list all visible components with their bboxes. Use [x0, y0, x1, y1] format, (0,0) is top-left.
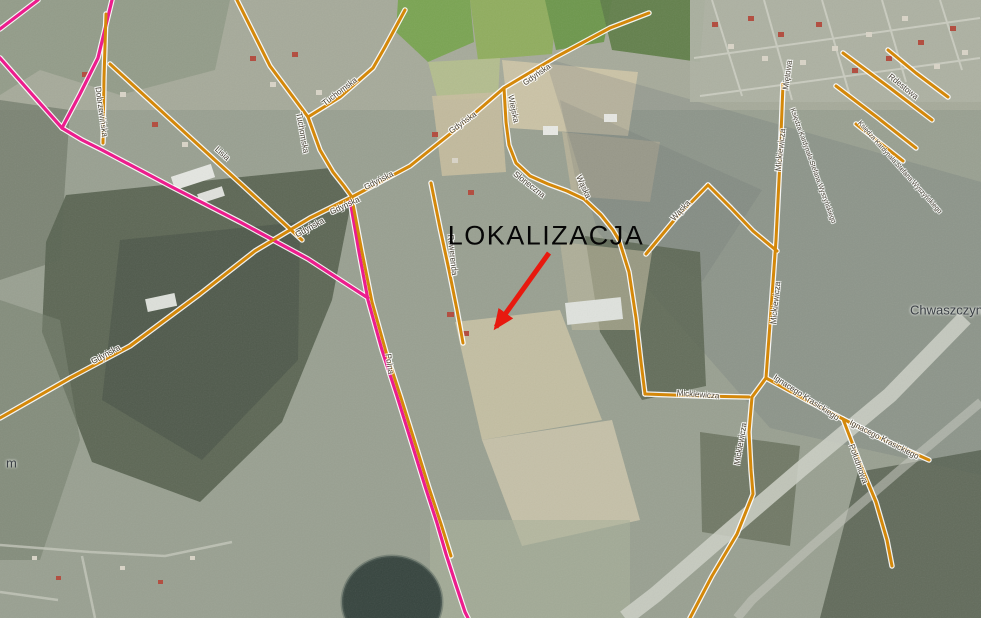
lokalizacja-annotation: LOKALIZACJA: [448, 223, 645, 250]
location-arrow-layer: [0, 0, 981, 618]
location-arrow: [496, 253, 549, 327]
map-container: DobrzewińskaLisiaTuchomskaTuchomskaGdyńs…: [0, 0, 981, 618]
